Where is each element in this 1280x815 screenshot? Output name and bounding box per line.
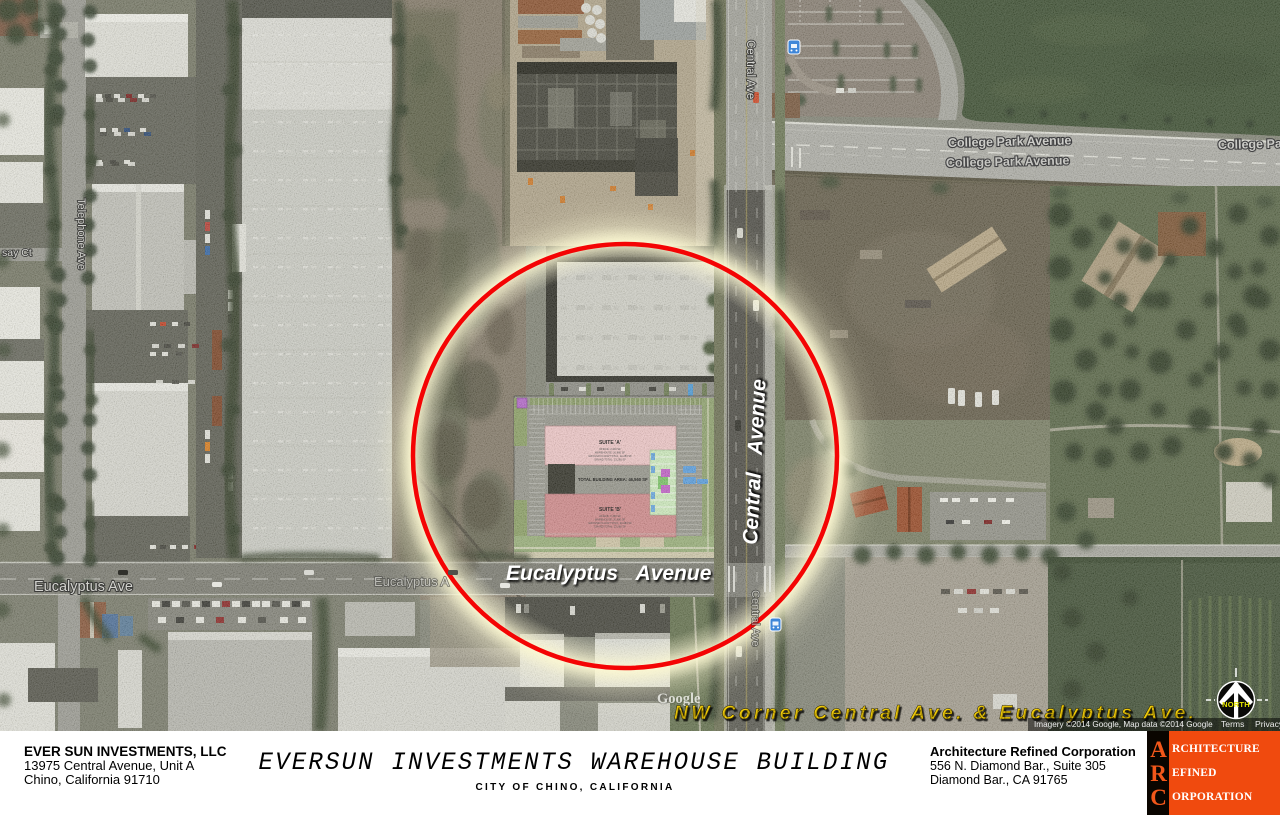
- svg-text:Central Ave: Central Ave: [744, 40, 756, 99]
- svg-text:say Ct: say Ct: [2, 247, 32, 259]
- svg-text:Eucalyptus Avenue: Eucalyptus Avenue: [506, 562, 712, 585]
- svg-text:Eucalyptus Ave: Eucalyptus Ave: [34, 579, 133, 595]
- svg-text:NORTH: NORTH: [1222, 700, 1250, 709]
- svg-text:Central Ave: Central Ave: [749, 590, 761, 647]
- svg-text:Imagery ©2014 Google, Map data: Imagery ©2014 Google, Map data ©2014 Goo…: [1034, 720, 1213, 729]
- svg-text:Eucalyptus A: Eucalyptus A: [374, 574, 449, 589]
- svg-text:Telephone Ave: Telephone Ave: [75, 198, 87, 270]
- svg-text:College Pa: College Pa: [1218, 137, 1280, 152]
- svg-text:Privacy: Privacy: [1255, 719, 1280, 729]
- svg-text:College Park Avenue: College Park Avenue: [948, 133, 1072, 150]
- svg-text:College Park Avenue: College Park Avenue: [946, 153, 1070, 170]
- svg-text:Terms: Terms: [1221, 719, 1244, 729]
